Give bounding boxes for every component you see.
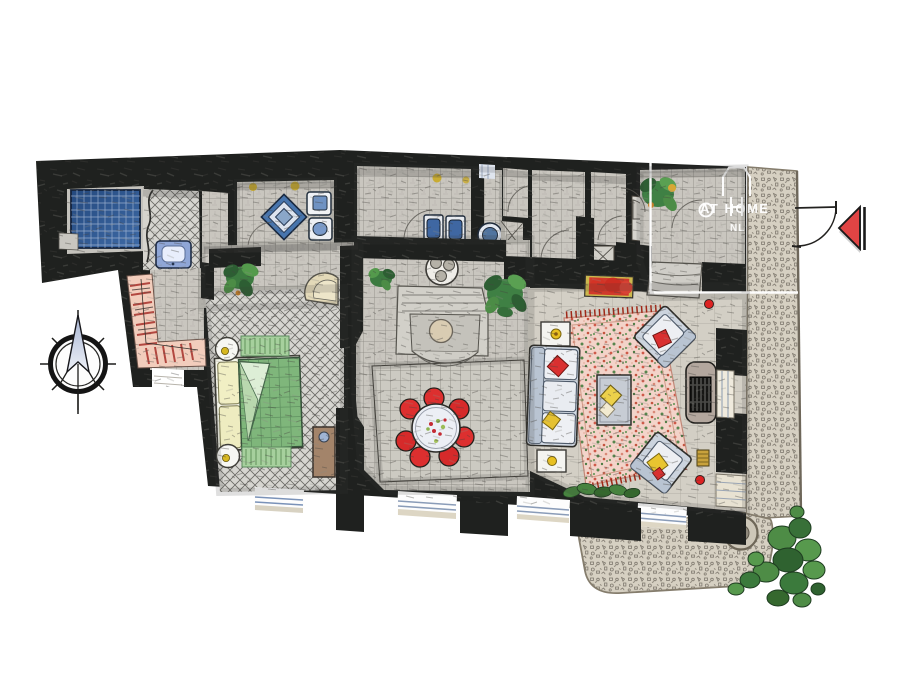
svg-text:AT HOME: AT HOME xyxy=(700,201,769,216)
